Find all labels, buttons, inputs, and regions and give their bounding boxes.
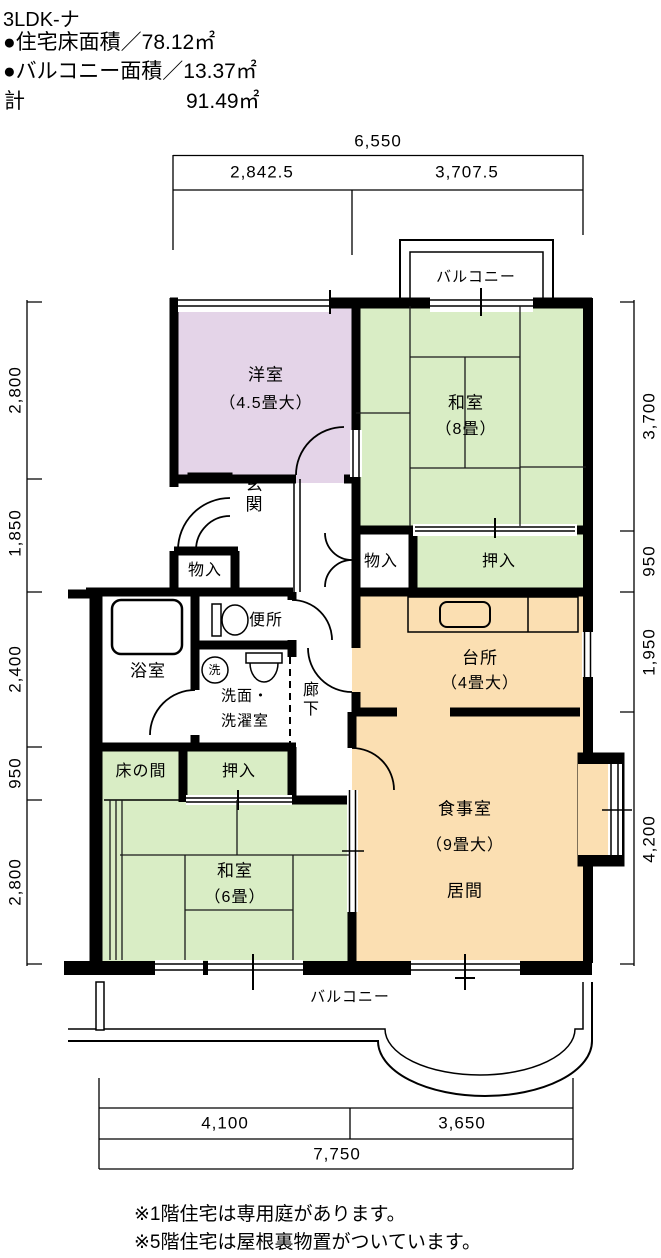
floor-area-line: ●住宅床面積／78.12㎡ bbox=[3, 26, 215, 56]
toilet-door-arc bbox=[292, 600, 332, 640]
dim-bottom-right: 3,650 bbox=[438, 1115, 486, 1132]
entrance-door-arc bbox=[178, 498, 230, 550]
western-room-label: 洋室 bbox=[248, 367, 284, 384]
storage-top-label: 物入 bbox=[364, 554, 398, 570]
closet-lower-label: 押入 bbox=[222, 764, 256, 780]
kitchen-label: 台所 bbox=[462, 650, 498, 667]
washitsu8-label: 和室 bbox=[448, 395, 484, 412]
note-1: ※1階住宅は専用庭があります。 bbox=[134, 1199, 406, 1226]
washer-mark: 洗 bbox=[208, 664, 221, 676]
western-room-size-label: （4.5畳大） bbox=[219, 396, 312, 412]
storage-entry-label: 物入 bbox=[188, 563, 222, 579]
bath-door-arc bbox=[150, 690, 195, 735]
dim-right-1: 950 bbox=[641, 545, 658, 576]
dim-left-3: 950 bbox=[7, 757, 24, 788]
dim-left-2: 2,400 bbox=[7, 645, 24, 693]
washitsu6-size-label: （6畳） bbox=[205, 890, 266, 906]
balcony-area-line: ●バルコニー面積／13.37㎡ bbox=[3, 55, 257, 85]
tokonoma-label: 床の間 bbox=[115, 764, 166, 780]
dim-top-right: 3,707.5 bbox=[435, 164, 499, 181]
washitsu8-size-label: （8畳） bbox=[436, 422, 497, 438]
dining-label: 食事室 bbox=[438, 801, 492, 818]
total-value: 91.49㎡ bbox=[186, 85, 260, 115]
dim-bottom-left: 4,100 bbox=[201, 1115, 249, 1132]
washbasin-icon bbox=[246, 653, 282, 663]
washitsu6-label: 和室 bbox=[217, 863, 253, 880]
note-2: ※5階住宅は屋根裏物置がついています。 bbox=[134, 1227, 481, 1254]
floor-plan-page: 3LDK-ナ ●住宅床面積／78.12㎡ ●バルコニー面積／13.37㎡ 計 9… bbox=[0, 0, 661, 1258]
dim-right-2: 1,950 bbox=[641, 628, 658, 676]
storage-double-door-arcs bbox=[325, 533, 352, 587]
toilet-icon bbox=[222, 605, 248, 635]
dim-left-0: 2,800 bbox=[7, 366, 24, 414]
entrance-door-leaf bbox=[188, 473, 232, 483]
dim-top-overall: 6,550 bbox=[354, 133, 402, 150]
kitchen-size-label: （4畳大） bbox=[441, 676, 519, 692]
balcony-top-label: バルコニー bbox=[436, 270, 516, 285]
floor-plan-drawing bbox=[0, 0, 661, 1258]
living-label: 居間 bbox=[447, 883, 483, 900]
bathtub-icon bbox=[112, 600, 182, 654]
dim-left-1: 1,850 bbox=[7, 509, 24, 557]
washroom-label-2: 洗濯室 bbox=[221, 714, 269, 729]
room-fill-western bbox=[170, 298, 360, 483]
genkan-label: 玄関 bbox=[244, 475, 261, 515]
toilet-label: 便所 bbox=[249, 613, 283, 629]
bath-label: 浴室 bbox=[130, 663, 166, 680]
dim-top-left: 2,842.5 bbox=[230, 164, 294, 181]
closet-top-label: 押入 bbox=[482, 554, 516, 570]
hallway-label: 廊下 bbox=[300, 681, 316, 719]
dim-right-0: 3,700 bbox=[641, 392, 658, 440]
total-label: 計 bbox=[4, 85, 25, 115]
room-fill-washitsu6 bbox=[100, 800, 356, 968]
balcony-partition bbox=[96, 982, 104, 1030]
dim-left-4: 2,800 bbox=[7, 858, 24, 906]
toilet-tank-icon bbox=[212, 604, 221, 636]
dim-bottom-overall: 7,750 bbox=[313, 1146, 361, 1163]
washroom-label-1: 洗面・ bbox=[221, 689, 269, 704]
dim-right-3: 4,200 bbox=[641, 815, 658, 863]
dining-size-label: （9畳大） bbox=[426, 838, 504, 854]
room-fill-washitsu8 bbox=[352, 298, 592, 534]
balcony-bottom-label: バルコニー bbox=[310, 990, 390, 1005]
